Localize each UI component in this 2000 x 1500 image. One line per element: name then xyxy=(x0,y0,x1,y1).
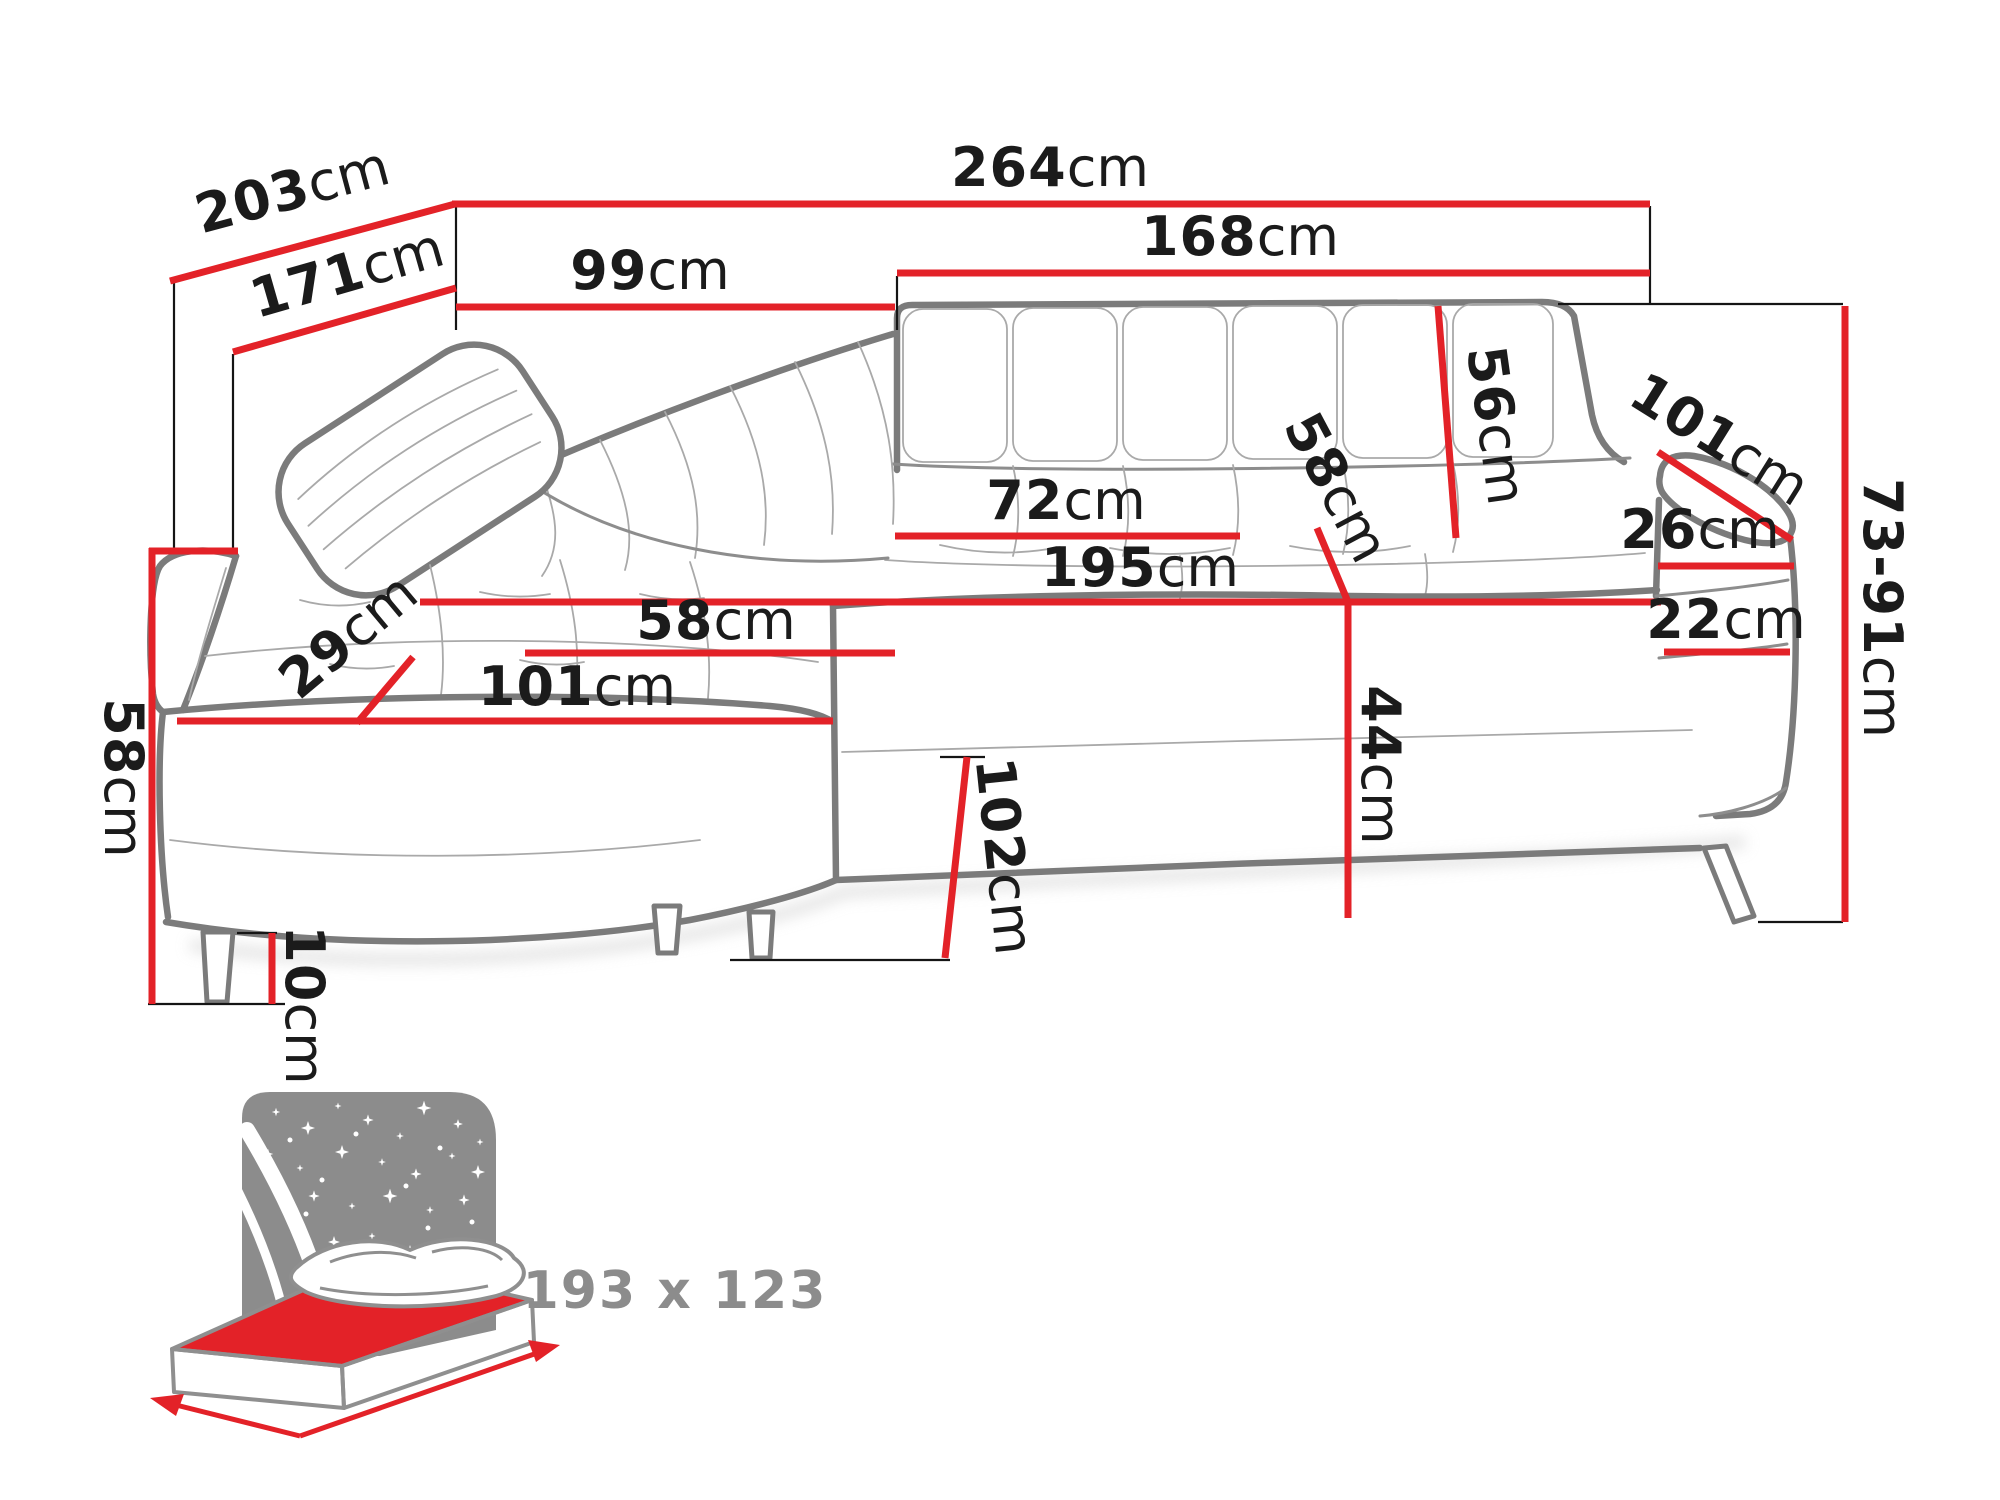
dim-101c-label: 101cm xyxy=(478,655,676,718)
sleeping-function-icon: 193 x 123 xyxy=(150,1092,827,1436)
sofa-backrest-left xyxy=(522,334,894,576)
diagram-page: 203cm 264cm 171cm 99cm 168cm 56cm 101cm … xyxy=(0,0,2000,1500)
dim-44-label: 44cm xyxy=(1349,685,1412,844)
dim-195-label: 195cm xyxy=(1041,536,1239,599)
dim-72-label: 72cm xyxy=(986,469,1145,532)
sofa-dimension-diagram: 203cm 264cm 171cm 99cm 168cm 56cm 101cm … xyxy=(0,0,2000,1500)
bed-duvet xyxy=(291,1239,524,1306)
dim-7391-label: 73-91cm xyxy=(1851,478,1914,738)
dim-26-label: 26cm xyxy=(1620,498,1779,561)
dim-102-line xyxy=(945,757,967,958)
dim-264-label: 264cm xyxy=(951,136,1149,199)
sofa-armrest-left xyxy=(150,551,236,712)
dim-10-label: 10cm xyxy=(273,925,336,1084)
bed-mattress xyxy=(150,1239,560,1436)
dim-99-label: 99cm xyxy=(570,239,729,302)
sofa-drawing xyxy=(150,302,1795,1002)
sofa-front-skirt xyxy=(160,712,836,941)
sofa-seat-right xyxy=(833,545,1700,880)
dim-56-label: 56cm xyxy=(1454,342,1539,509)
dim-102-label: 102cm xyxy=(963,754,1046,958)
sleeping-size-label: 193 x 123 xyxy=(523,1261,828,1321)
dim-22-label: 22cm xyxy=(1646,588,1805,651)
dim-58h-label: 58cm xyxy=(92,698,155,857)
headrest-pillow xyxy=(256,322,583,617)
dim-58s-label: 58cm xyxy=(636,589,795,652)
dim-168-label: 168cm xyxy=(1141,205,1339,268)
